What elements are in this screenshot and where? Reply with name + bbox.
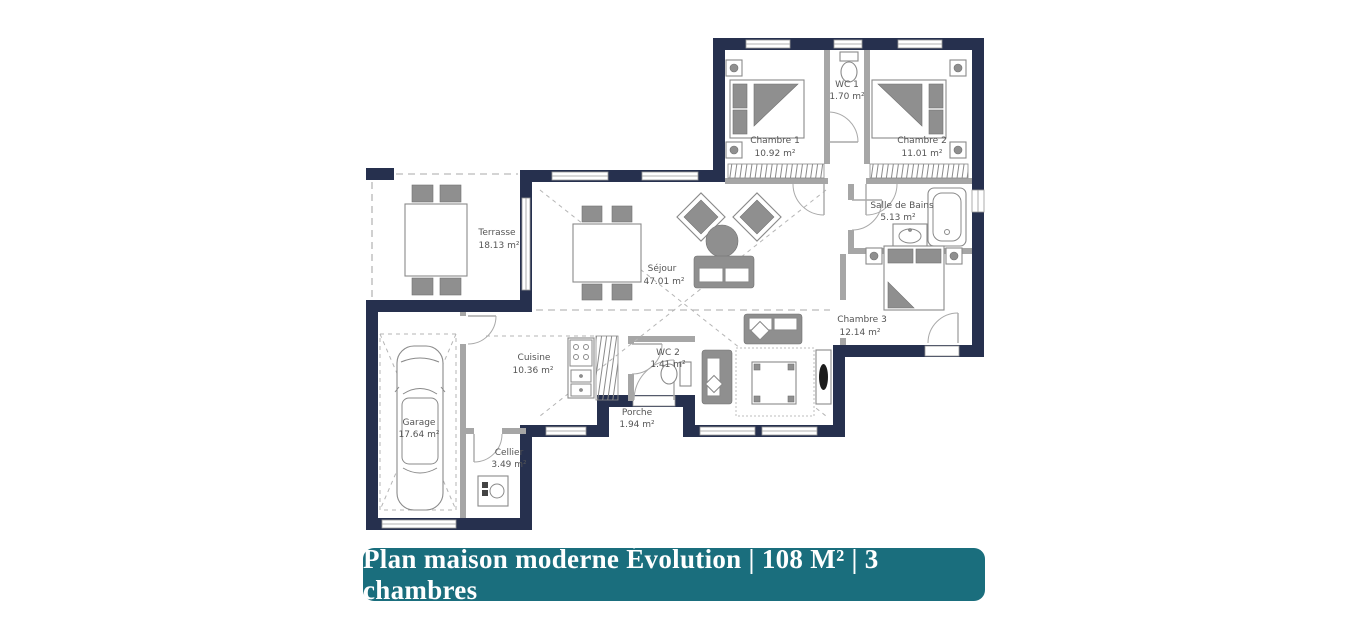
room-label-cellier: Cellier	[495, 448, 524, 458]
room-label-garage: Garage	[403, 418, 436, 428]
room-area-salle-de-bains: 5.13 m²	[880, 213, 916, 223]
room-area-wc1: 1.70 m²	[829, 92, 865, 102]
tv-lounge-set	[702, 314, 831, 416]
title-banner-text: Plan maison moderne Évolution | 108 M² |…	[363, 544, 985, 606]
terrace-table-set	[405, 185, 467, 295]
room-area-cellier: 3.49 m²	[491, 460, 527, 470]
wc1-toilet	[840, 52, 858, 82]
room-area-sejour: 47.01 m²	[643, 277, 684, 287]
page: Chambre 1 10.92 m² WC 1 1.70 m² Chambre …	[0, 0, 1350, 630]
room-area-terrasse: 18.13 m²	[478, 241, 519, 251]
room-area-porche: 1.94 m²	[619, 420, 655, 430]
room-area-chambre1: 10.92 m²	[754, 149, 795, 159]
room-area-cuisine: 10.36 m²	[512, 366, 553, 376]
bed-chambre3	[866, 246, 962, 310]
dining-table-set	[573, 206, 641, 300]
room-label-terrasse: Terrasse	[477, 228, 516, 238]
room-area-chambre3: 12.14 m²	[839, 328, 880, 338]
room-label-cuisine: Cuisine	[518, 353, 551, 363]
room-label-chambre1: Chambre 1	[750, 136, 800, 146]
room-label-wc1: WC 1	[835, 80, 859, 90]
room-label-salle-de-bains: Salle de Bains	[870, 201, 934, 211]
room-area-chambre2: 11.01 m²	[901, 149, 942, 159]
room-label-sejour: Séjour	[648, 263, 677, 274]
title-banner: Plan maison moderne Évolution | 108 M² |…	[363, 548, 985, 601]
floor-plan: Chambre 1 10.92 m² WC 1 1.70 m² Chambre …	[0, 0, 1350, 630]
room-label-wc2: WC 2	[656, 348, 680, 358]
room-area-wc2: 1.41 m²	[650, 360, 686, 370]
room-label-chambre2: Chambre 2	[897, 136, 947, 146]
room-label-chambre3: Chambre 3	[837, 315, 887, 325]
room-label-porche: Porche	[622, 408, 653, 418]
room-area-garage: 17.64 m²	[398, 430, 439, 440]
living-room-sofa-set	[677, 193, 781, 288]
kitchen-fixtures	[568, 338, 594, 398]
car	[395, 346, 445, 510]
cellier-appliance	[478, 476, 508, 506]
